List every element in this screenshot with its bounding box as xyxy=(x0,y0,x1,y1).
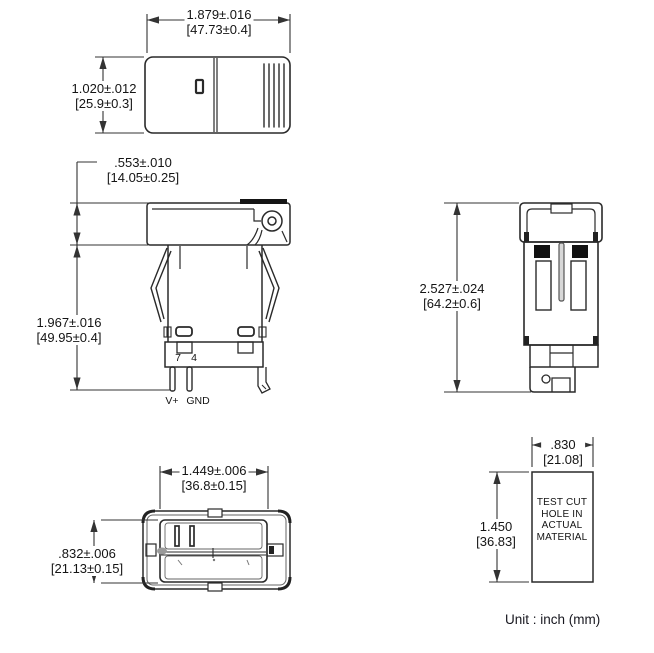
dim-hole-height-mm: [36.83] xyxy=(476,534,516,549)
dim-overall-height: 2.527±.024 [64.2±0.6] xyxy=(418,281,487,311)
dim-body-height-inch: 1.967±.016 xyxy=(37,315,102,330)
dim-bezel-height-mm: [14.05±0.25] xyxy=(107,170,179,185)
dim-cutout-height-mm: [21.13±0.15] xyxy=(51,561,123,576)
dim-top-height-inch: 1.020±.012 xyxy=(72,81,137,96)
test-hole-note-line3: ACTUAL xyxy=(542,520,583,531)
dim-cutout-width-inch: 1.449±.006 xyxy=(182,463,247,478)
bottom-view xyxy=(143,509,290,591)
dim-bezel-height-inch: .553±.010 xyxy=(114,155,172,170)
unit-note: Unit : inch (mm) xyxy=(505,612,600,627)
dim-top-height-mm: [25.9±0.3] xyxy=(75,96,133,111)
terminal-pin-7 xyxy=(170,367,175,391)
dim-hole-height: 1.450 [36.83] xyxy=(474,519,518,549)
dim-body-height: 1.967±.016 [49.95±0.4] xyxy=(35,315,104,345)
test-hole-note-line2: HOLE IN xyxy=(541,509,582,520)
pin-label-gnd: GND xyxy=(186,395,209,407)
test-hole-note-line4: MATERIAL xyxy=(537,532,588,543)
side-hook xyxy=(258,367,270,393)
terminal-pin-4 xyxy=(187,367,192,391)
test-hole-note-line1: TEST CUT xyxy=(537,497,587,508)
pin-label-4: 4 xyxy=(191,352,197,364)
dim-overall-height-mm: [64.2±0.6] xyxy=(423,296,481,311)
dim-top-height: 1.020±.012 [25.9±0.3] xyxy=(70,81,139,111)
plunger xyxy=(559,243,564,301)
mounting-clips xyxy=(151,248,279,322)
dim-hole-width-mm: [21.08] xyxy=(543,452,583,467)
top-view xyxy=(145,57,290,133)
test-hole-note: TEST CUT HOLE IN ACTUAL MATERIAL xyxy=(537,497,588,543)
grip-ribs xyxy=(264,64,284,127)
front-view xyxy=(147,199,290,393)
dim-hole-width: .830 [21.08] xyxy=(541,437,585,467)
rocker-window xyxy=(196,80,203,93)
dim-top-width-mm: [47.73±0.4] xyxy=(187,22,252,37)
mold-marks xyxy=(178,559,249,565)
pin-label-7: 7 xyxy=(175,352,181,364)
dim-bezel-height: .553±.010 [14.05±0.25] xyxy=(105,155,181,185)
dim-cutout-width-mm: [36.8±0.15] xyxy=(182,478,247,493)
dim-cutout-width: 1.449±.006 [36.8±0.15] xyxy=(180,463,249,493)
side-view xyxy=(520,203,602,392)
dim-hole-height-inch: 1.450 xyxy=(480,519,513,534)
engineering-drawing: 1.879±.016 [47.73±0.4] 1.020±.012 [25.9±… xyxy=(0,0,654,653)
dimension-lines xyxy=(70,14,593,583)
dim-hole-width-inch: .830 xyxy=(550,437,575,452)
dim-top-width: 1.879±.016 [47.73±0.4] xyxy=(185,7,254,37)
dim-body-height-mm: [49.95±0.4] xyxy=(37,330,102,345)
dim-top-width-inch: 1.879±.016 xyxy=(187,7,252,22)
dim-overall-height-inch: 2.527±.024 xyxy=(420,281,485,296)
pin-label-vplus: V+ xyxy=(165,395,178,407)
dim-cutout-height: .832±.006 [21.13±0.15] xyxy=(49,546,125,576)
dim-cutout-height-inch: .832±.006 xyxy=(58,546,116,561)
actuator-edge xyxy=(240,199,287,204)
